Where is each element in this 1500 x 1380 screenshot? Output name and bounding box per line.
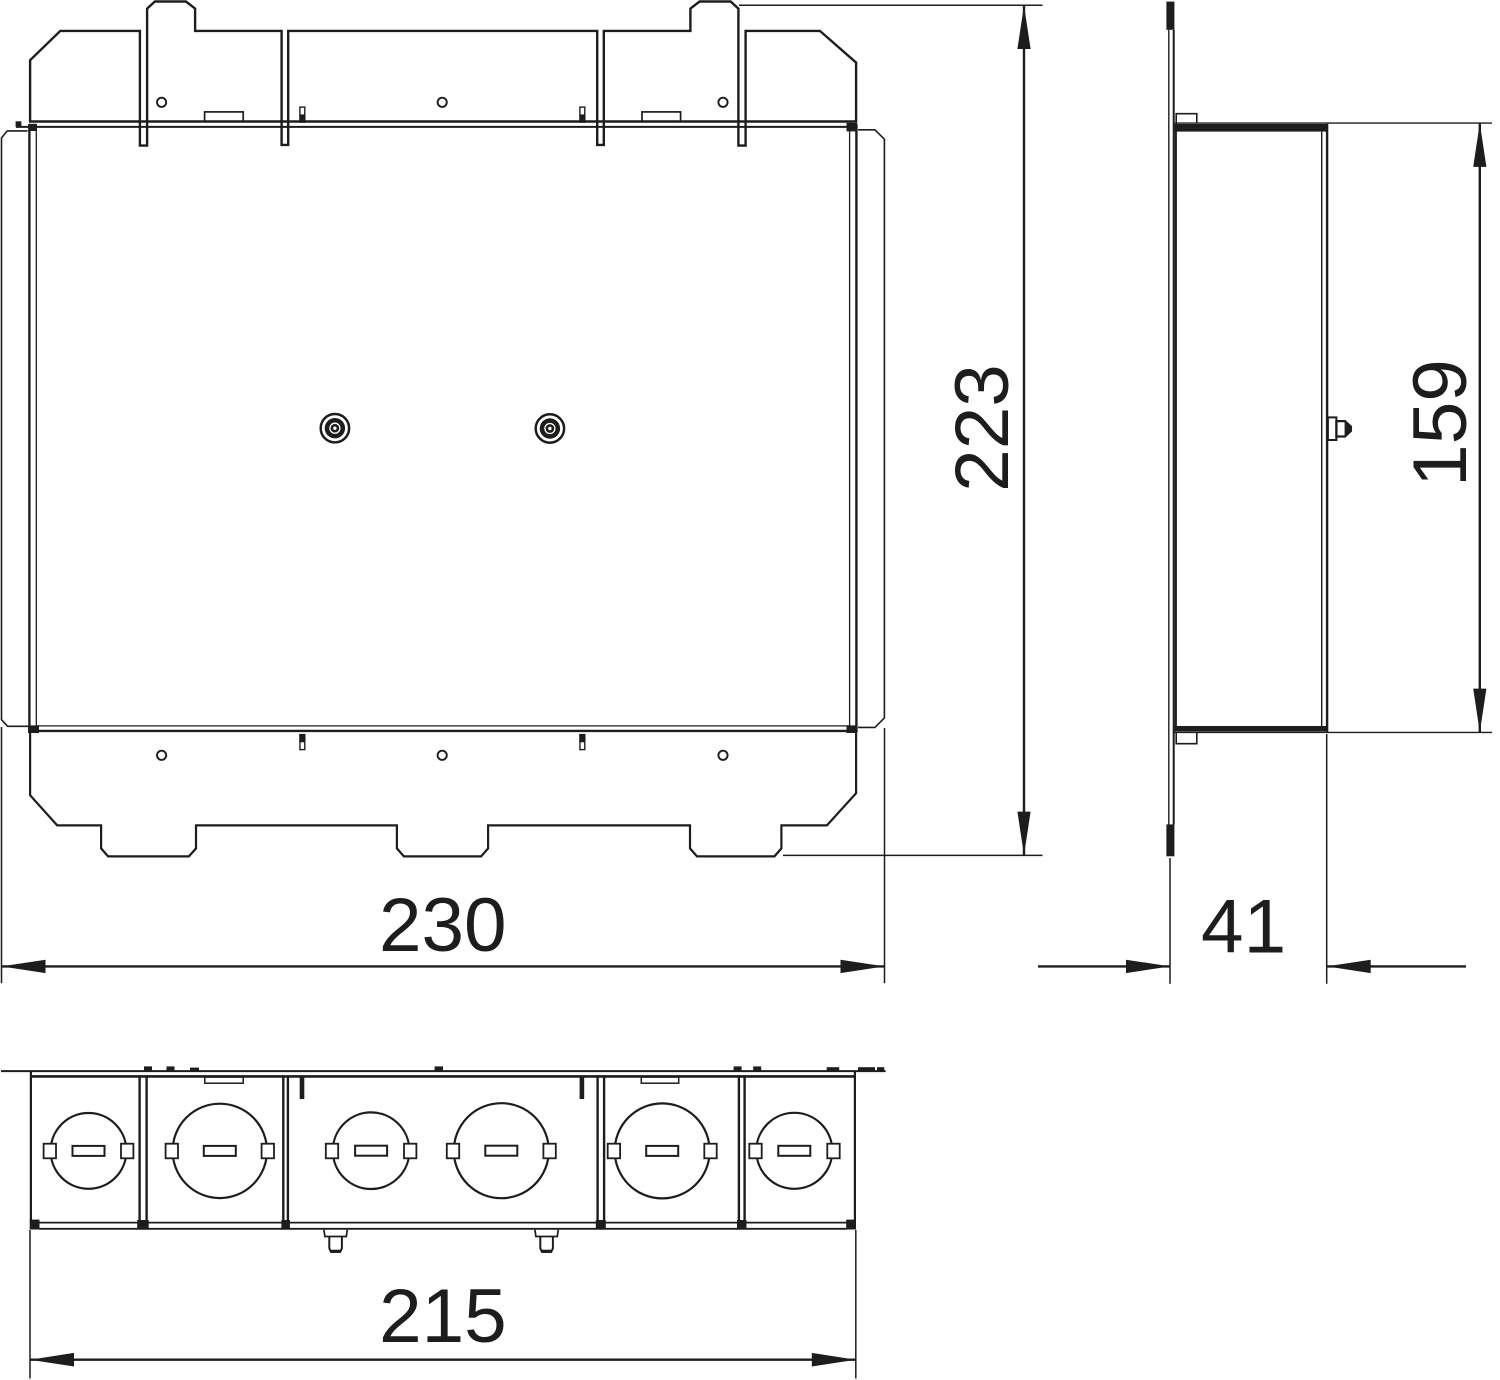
svg-text:159: 159 [1398,359,1483,487]
svg-text:215: 215 [379,1274,507,1359]
svg-text:230: 230 [379,883,507,968]
svg-text:41: 41 [1201,884,1286,969]
svg-text:223: 223 [940,364,1025,492]
